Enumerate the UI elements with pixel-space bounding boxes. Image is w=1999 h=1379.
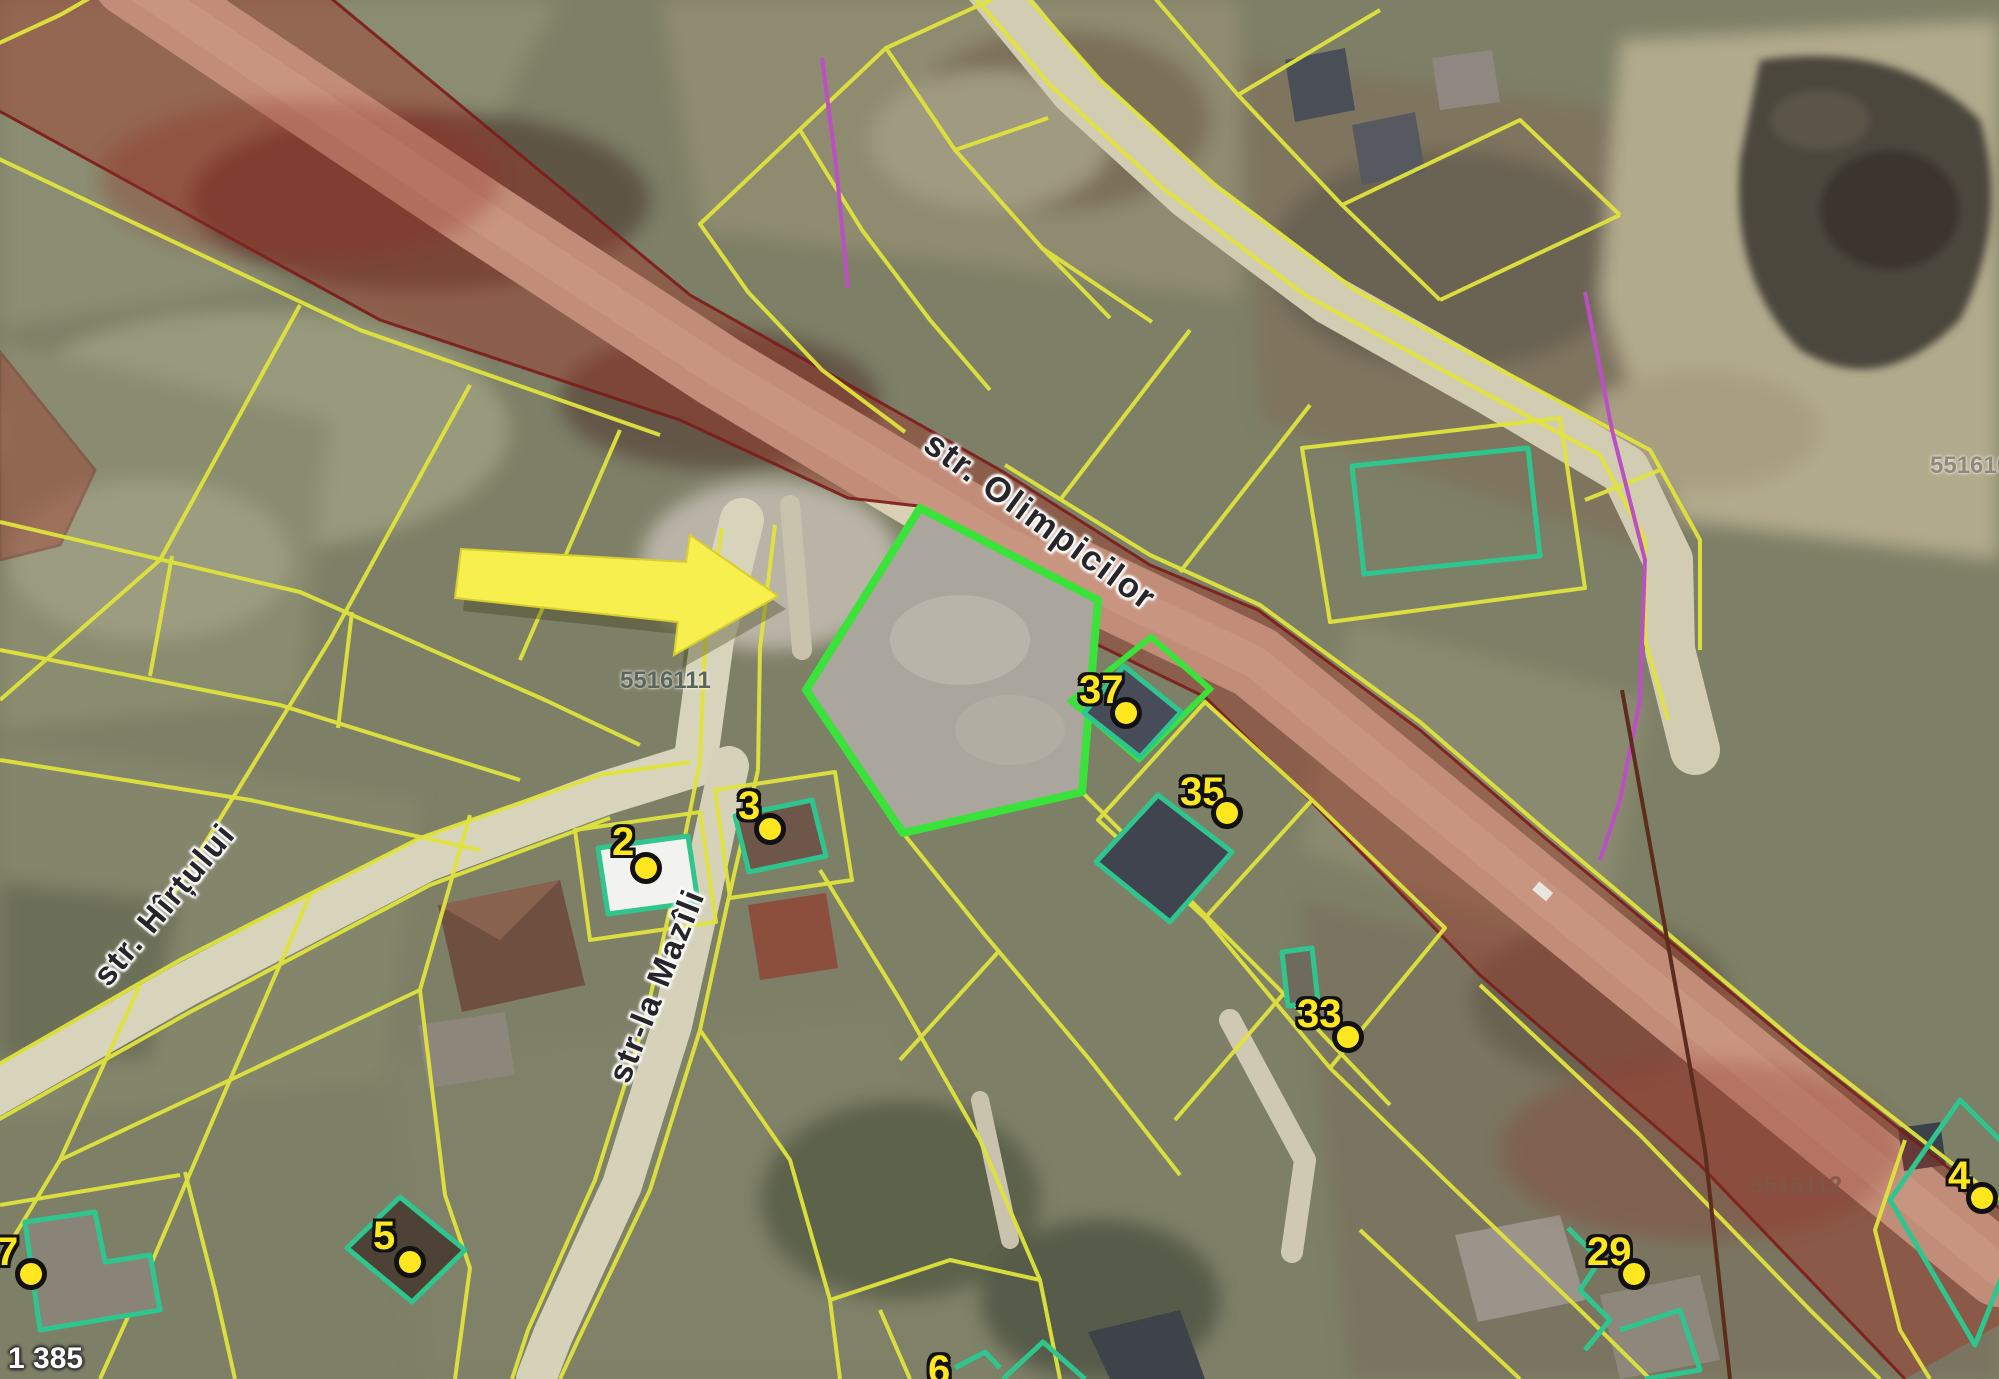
map-graphics (0, 0, 1999, 1379)
map-canvas[interactable]: str. Olimpicilor str. Hîrțului str-la Ma… (0, 0, 1999, 1379)
house-marker-29[interactable] (1618, 1258, 1650, 1290)
house-marker-2[interactable] (630, 852, 662, 884)
house-marker-37[interactable] (1110, 697, 1142, 729)
parcel-id-5516111: 5516111 (620, 667, 711, 695)
house-number-2: 2 (612, 822, 634, 862)
house-marker-33[interactable] (1332, 1021, 1364, 1053)
parcel-id-5516103: 5516103 (1930, 452, 1999, 480)
parcel-id-5516112: 5516112 (1750, 1172, 1842, 1200)
house-marker-35[interactable] (1211, 797, 1243, 829)
house-number-5: 5 (373, 1216, 395, 1256)
house-marker-4[interactable] (1966, 1182, 1998, 1214)
house-number-7: 7 (0, 1232, 18, 1272)
house-marker-3[interactable] (754, 813, 786, 845)
house-number-6: 6 (928, 1350, 950, 1379)
house-marker-7[interactable] (15, 1258, 47, 1290)
scale-label: 1 385 (8, 1342, 83, 1376)
house-marker-5[interactable] (394, 1246, 426, 1278)
